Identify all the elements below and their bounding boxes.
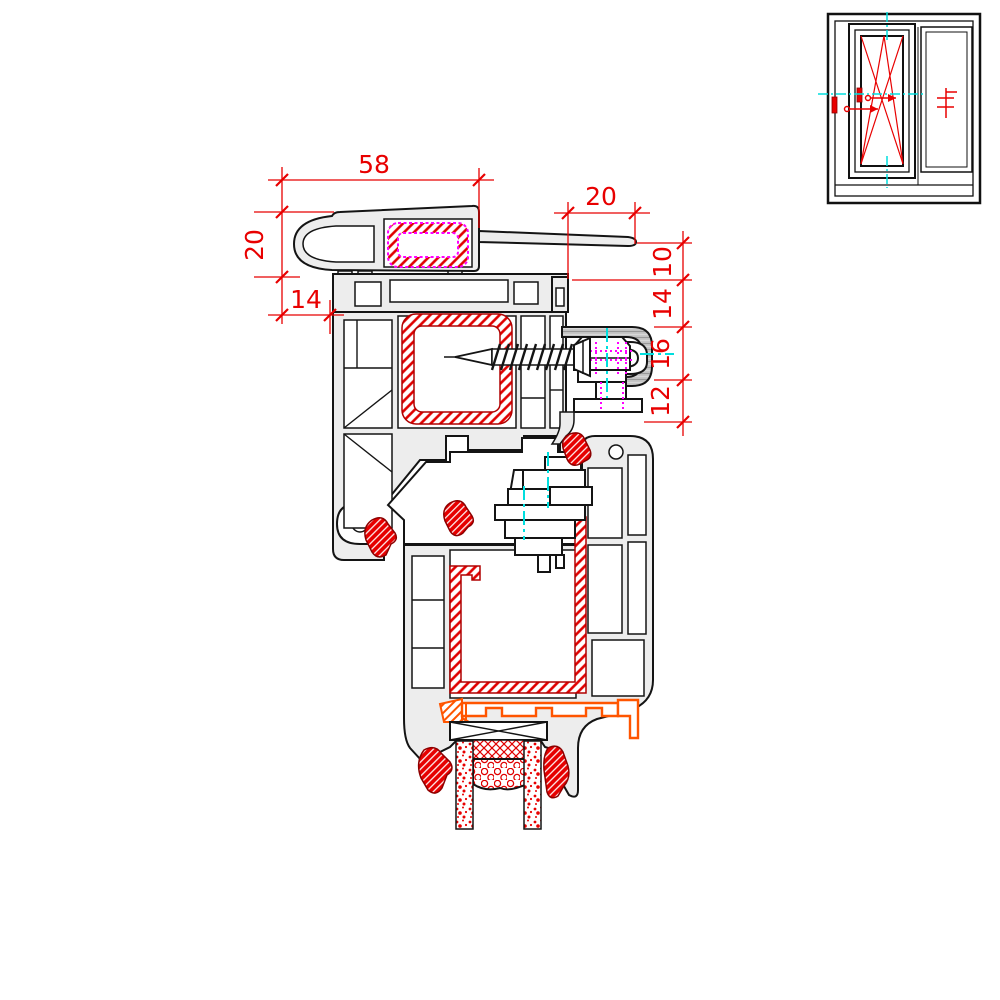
glass-pane-outer [456, 741, 473, 829]
dim-label-14-left: 14 [290, 285, 322, 314]
screw-head [574, 338, 590, 376]
window-schematic-icon [818, 12, 980, 203]
glass-pane-inner [524, 741, 541, 829]
addon-steel-core [398, 233, 458, 257]
rain-flap-fin [479, 231, 636, 246]
band-slot [390, 280, 508, 302]
band-slot [514, 282, 538, 304]
sash-chamber [628, 455, 646, 535]
dimension-20-right: 20 [554, 182, 650, 279]
dim-label-10: 10 [648, 246, 677, 278]
sash-chamber [412, 556, 444, 688]
stack-piece [505, 520, 575, 538]
band-slot [355, 282, 381, 306]
stack-tooth [556, 555, 564, 568]
stack-piece [495, 505, 585, 520]
glazing-bead-chamber [592, 640, 644, 696]
roller-stem [596, 382, 626, 399]
stack-piece [515, 538, 562, 555]
dim-label-58: 58 [358, 150, 390, 179]
dim-label-20-right: 20 [585, 182, 617, 211]
sash-screw-channel-hole [609, 445, 623, 459]
frame-chamber [521, 316, 545, 428]
dim-label-16: 16 [646, 338, 675, 370]
frame-chamber [344, 320, 392, 428]
dim-label-20-left: 20 [240, 229, 269, 261]
spacer-desiccant [473, 759, 527, 789]
cross-section-drawing: 58 20 14 20 [0, 0, 1000, 1000]
dim-label-14: 14 [648, 288, 677, 320]
sash-chamber [588, 545, 622, 633]
opening-direction-arrows [845, 94, 897, 113]
handle-mark [857, 88, 862, 102]
addon-bulb-cavity [303, 226, 374, 262]
cad-canvas: 58 20 14 20 [0, 0, 1000, 1000]
section-cut-marker [937, 88, 957, 118]
frame-steel-core [414, 326, 500, 412]
band-upstand-slot [556, 288, 564, 306]
handle-mark [832, 97, 837, 113]
stack-piece [550, 487, 592, 505]
dim-label-12: 12 [646, 385, 675, 417]
stack-tooth [538, 555, 550, 572]
stack-piece [508, 489, 550, 505]
sash-chamber [628, 542, 646, 634]
glazing-gasket-left [419, 748, 452, 793]
glazing-bridge-end [618, 700, 638, 738]
roller-track-plate [574, 399, 642, 412]
sash-chamber [588, 468, 622, 538]
frame-chamber [344, 434, 392, 528]
glazing-bridge-wedge [440, 699, 462, 722]
